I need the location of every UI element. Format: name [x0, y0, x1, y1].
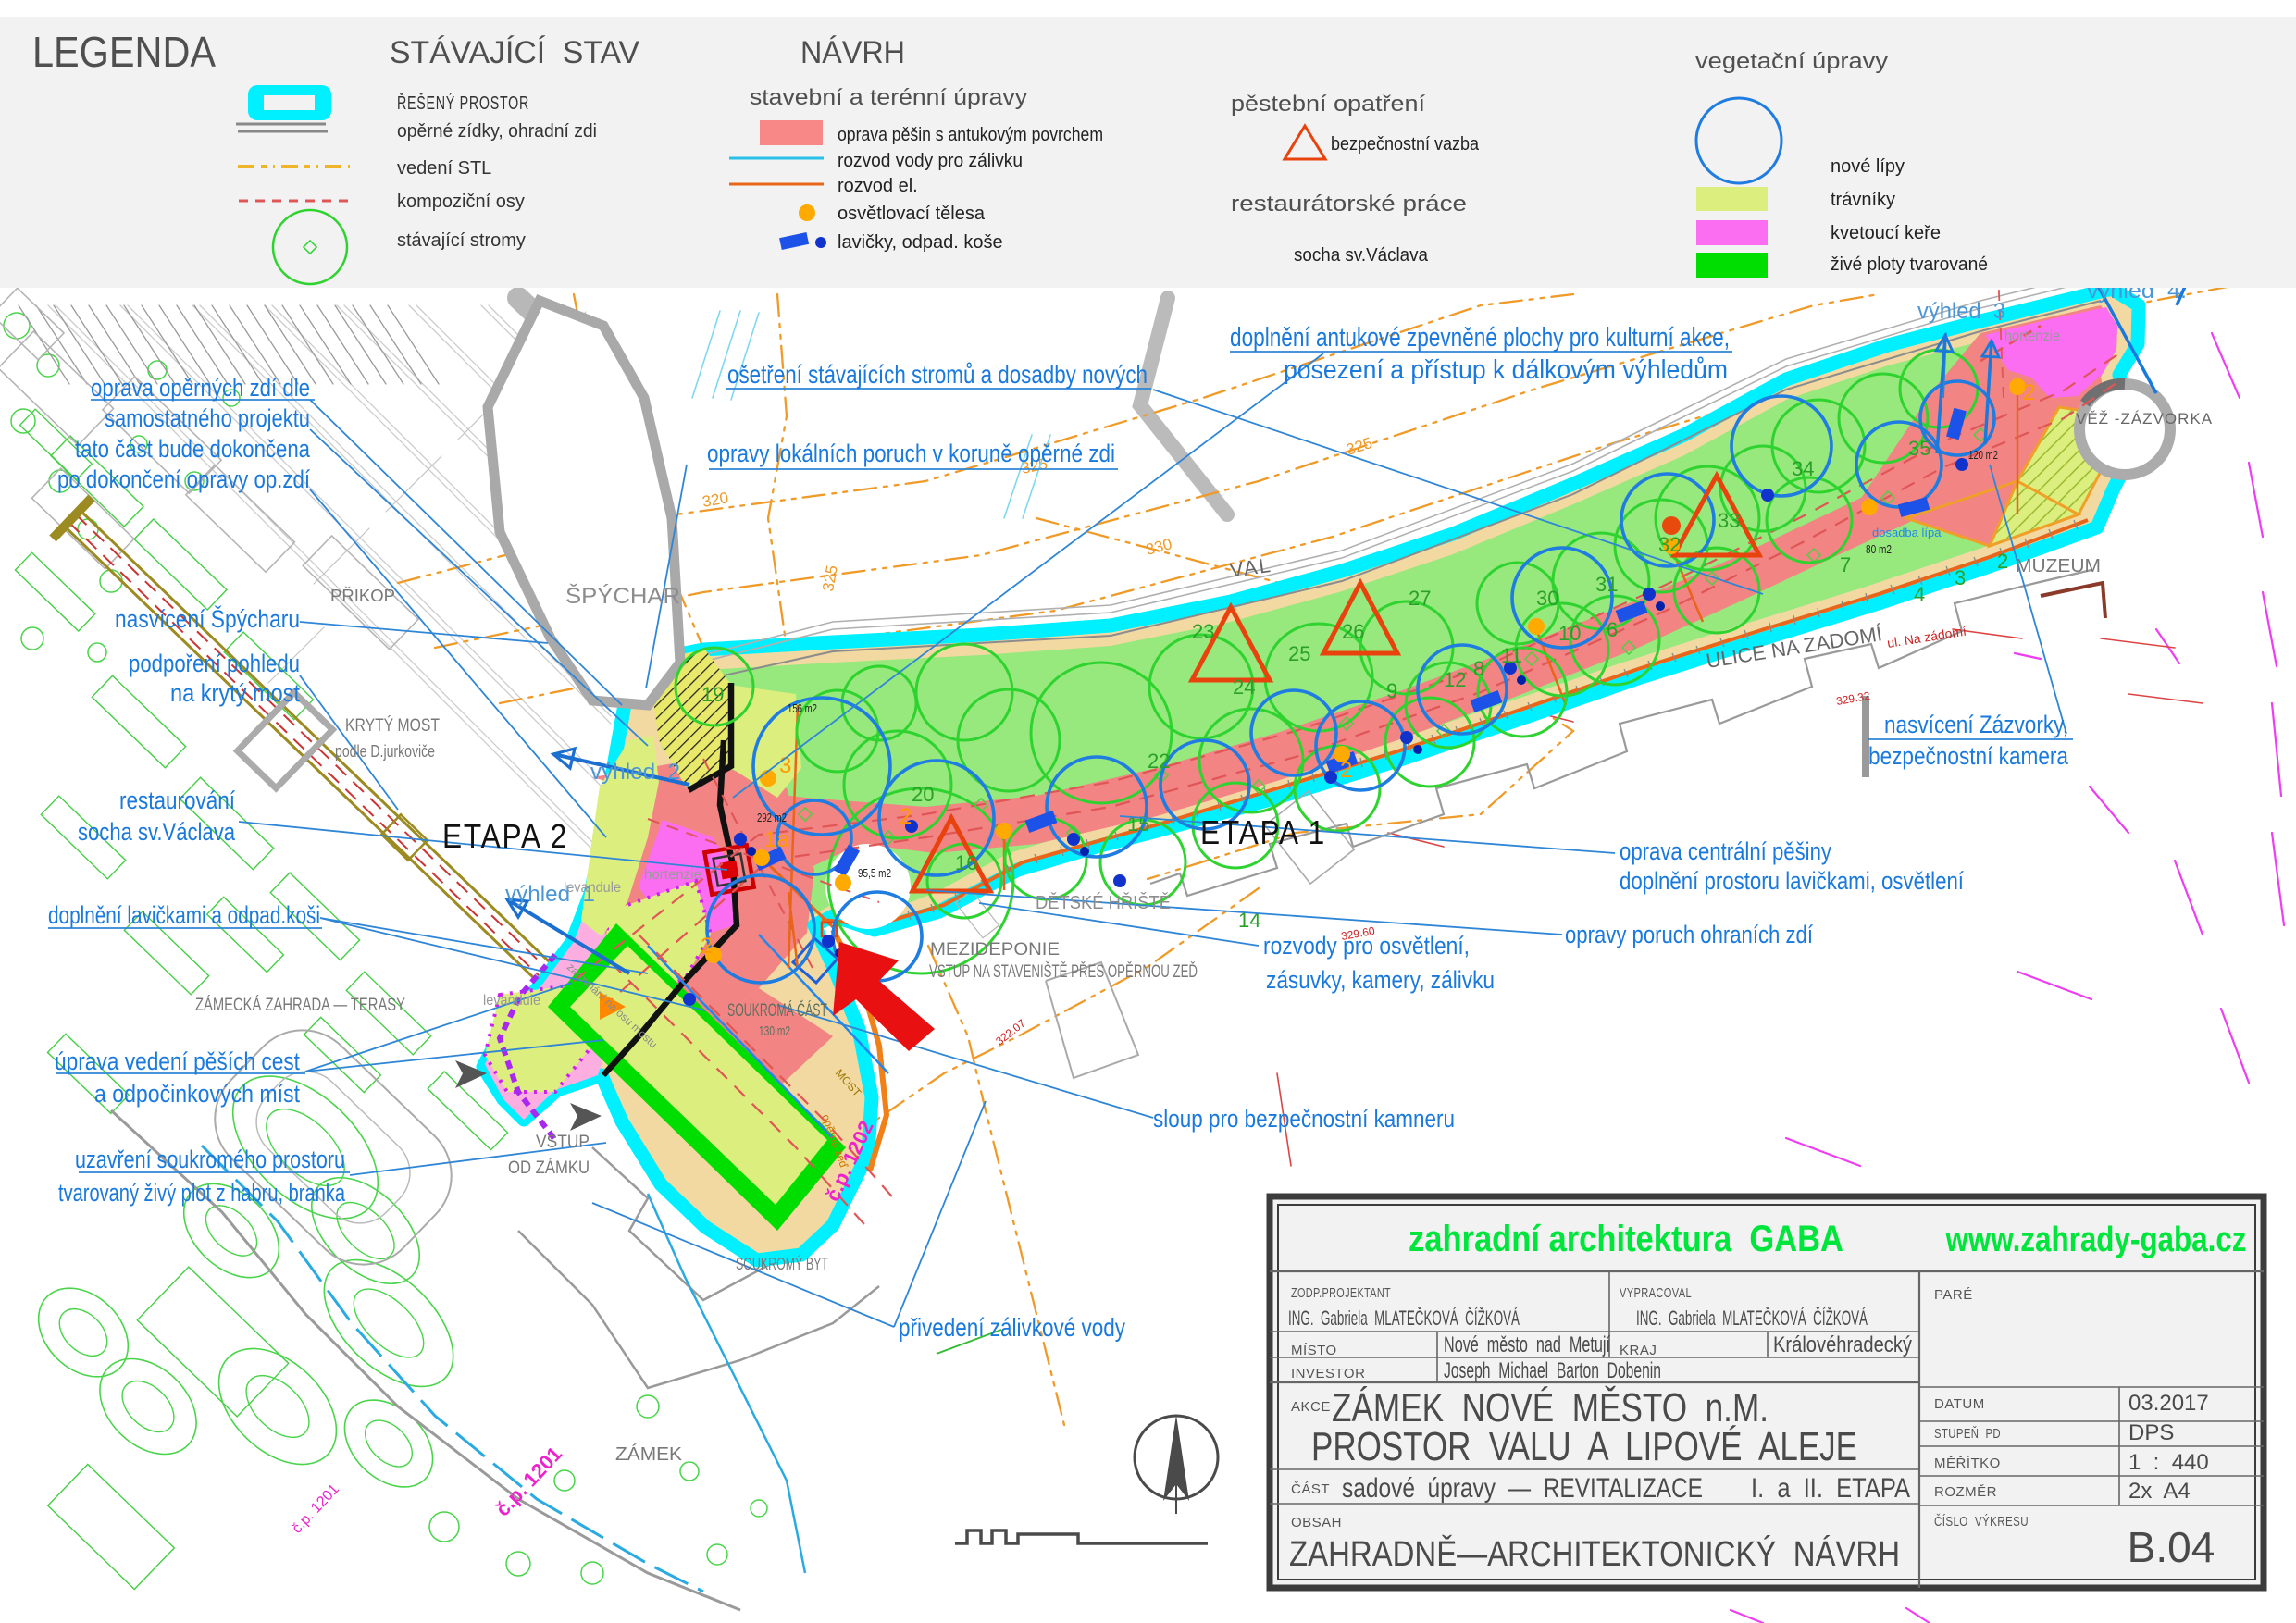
- svg-text:lavičky, odpad. koše: lavičky, odpad. koše: [838, 232, 1003, 253]
- svg-text:levandule: levandule: [564, 880, 621, 896]
- svg-text:ETAPA 2: ETAPA 2: [442, 817, 568, 855]
- svg-text:ING. Gabriela MLATEČKOVÁ ČÍ: ING. Gabriela MLATEČKOVÁ ČÍŽKOVÁ: [1636, 1307, 1868, 1330]
- svg-text:20: 20: [912, 783, 934, 806]
- svg-text:www.zahrady-gaba.cz: www.zahrady-gaba.cz: [1945, 1220, 2247, 1259]
- svg-text:VSTUP NA STAVENIŠTĚ PŘES OPĚRN: VSTUP NA STAVENIŠTĚ PŘES OPĚRNOU ZEĎ: [929, 961, 1198, 982]
- svg-text:ZÁMECKÁ ZAHRADA — TERASY: ZÁMECKÁ ZAHRADA — TERASY: [195, 996, 405, 1015]
- svg-text:ZODP.PROJEKTANT: ZODP.PROJEKTANT: [1291, 1285, 1391, 1301]
- svg-text:VSTUP: VSTUP: [536, 1133, 590, 1152]
- svg-text:2: 2: [2023, 380, 2035, 405]
- svg-text:23: 23: [1192, 620, 1214, 643]
- svg-text:LEGENDA: LEGENDA: [32, 28, 216, 76]
- svg-text:KRYTÝ MOST: KRYTÝ MOST: [345, 716, 440, 736]
- svg-text:levandule: levandule: [483, 993, 540, 1009]
- svg-text:12: 12: [1444, 668, 1466, 691]
- svg-text:120 m2: 120 m2: [1968, 448, 1998, 462]
- svg-text:vegetační úpravy: vegetační úpravy: [1695, 49, 1888, 74]
- svg-text:socha sv.Václava: socha sv.Václava: [78, 818, 236, 846]
- svg-text:doplnění antukové zpevněné plo: doplnění antukové zpevněné plochy pro ku…: [1230, 323, 1730, 353]
- svg-text:živé ploty tvarované: živé ploty tvarované: [1831, 254, 1988, 275]
- svg-text:a odpočinkových míst: a odpočinkových míst: [94, 1080, 300, 1108]
- svg-text:30: 30: [1536, 587, 1558, 610]
- svg-text:vedení STL: vedení STL: [397, 158, 491, 179]
- svg-text:130 m2: 130 m2: [759, 1023, 790, 1039]
- svg-text:na krytý most: na krytý most: [170, 679, 300, 707]
- svg-text:STÁVAJÍCÍ STAV: STÁVAJÍCÍ STAV: [390, 35, 639, 70]
- svg-text:I. a II. ETAPA: I. a II. ETAPA: [1751, 1473, 1910, 1504]
- svg-text:úprava vedení pěších cest: úprava vedení pěších cest: [55, 1047, 300, 1075]
- svg-text:3: 3: [1955, 566, 1966, 589]
- svg-text:ČÍSLO VÝKRESU: ČÍSLO VÝKRESU: [1934, 1514, 2029, 1530]
- svg-text:zahradní architektura GABA: zahradní architektura GABA: [1409, 1219, 1843, 1259]
- svg-text:tato část bude dokončena: tato část bude dokončena: [75, 435, 311, 463]
- svg-text:2: 2: [701, 934, 713, 959]
- svg-text:SOUKROMÝ BYT: SOUKROMÝ BYT: [736, 1255, 828, 1273]
- svg-text:restaurátorské práce: restaurátorské práce: [1231, 192, 1467, 217]
- svg-text:rozvod vody pro zálivku: rozvod vody pro zálivku: [838, 151, 1023, 171]
- svg-text:bezpečnostní kamera: bezpečnostní kamera: [1868, 742, 2069, 770]
- svg-text:DĚTSKÉ HŘIŠTĚ: DĚTSKÉ HŘIŠTĚ: [1036, 892, 1171, 913]
- svg-text:Královéhradecký: Královéhradecký: [1773, 1332, 1912, 1357]
- svg-text:22: 22: [1148, 750, 1170, 773]
- svg-text:95,5 m2: 95,5 m2: [858, 866, 891, 880]
- svg-text:24: 24: [1233, 675, 1255, 699]
- svg-text:socha sv.Václava: socha sv.Václava: [1294, 245, 1429, 266]
- svg-text:výhled 2: výhled 2: [590, 760, 680, 785]
- svg-text:19: 19: [701, 683, 724, 706]
- svg-text:MÍSTO: MÍSTO: [1291, 1343, 1337, 1358]
- svg-text:po dokončení opravy op.zdí: po dokončení opravy op.zdí: [57, 465, 310, 493]
- svg-text:opěrné zídky, ohradní zdi: opěrné zídky, ohradní zdi: [397, 121, 597, 142]
- svg-text:KRAJ: KRAJ: [1620, 1343, 1657, 1358]
- svg-text:ZÁMEK: ZÁMEK: [615, 1443, 683, 1465]
- svg-text:podle D.jurkoviče: podle D.jurkoviče: [335, 742, 435, 761]
- svg-text:7: 7: [1840, 553, 1851, 576]
- svg-text:35: 35: [1908, 437, 1930, 460]
- svg-text:2: 2: [1997, 550, 2008, 573]
- svg-text:AKCE: AKCE: [1291, 1399, 1331, 1415]
- svg-text:STUPEŇ PD: STUPEŇ PD: [1934, 1426, 2001, 1442]
- svg-text:výhled 3: výhled 3: [1917, 299, 2005, 324]
- svg-text:nasvícení Špýcharu: nasvícení Špýcharu: [115, 604, 300, 633]
- svg-text:rozvod el.: rozvod el.: [838, 176, 918, 196]
- svg-text:přivedení zálivkové vody: přivedení zálivkové vody: [899, 1313, 1125, 1342]
- svg-text:osvětlovací tělesa: osvětlovací tělesa: [838, 204, 986, 224]
- svg-text:oprava centrální pěšiny: oprava centrální pěšiny: [1620, 837, 1831, 865]
- svg-text:16: 16: [955, 851, 977, 874]
- svg-text:31: 31: [1595, 573, 1618, 596]
- svg-text:dosadba lípa: dosadba lípa: [1872, 526, 1942, 539]
- svg-text:stávající stromy: stávající stromy: [397, 230, 526, 251]
- svg-text:8: 8: [1473, 657, 1484, 680]
- svg-text:podpoření pohledu: podpoření pohledu: [129, 650, 300, 677]
- svg-text:MĚŘÍTKO: MĚŘÍTKO: [1934, 1456, 2001, 1471]
- svg-text:INVESTOR: INVESTOR: [1291, 1366, 1365, 1381]
- svg-text:MUZEUM: MUZEUM: [2016, 556, 2101, 576]
- svg-text:VĚŽ -ZÁZVORKA: VĚŽ -ZÁZVORKA: [2076, 410, 2213, 427]
- svg-text:opravy poruch ohraních zdí: opravy poruch ohraních zdí: [1565, 921, 1813, 948]
- svg-text:oprava pěšin s antukovým povrc: oprava pěšin s antukovým povrchem: [838, 125, 1103, 145]
- svg-text:156 m2: 156 m2: [788, 701, 817, 715]
- svg-text:11: 11: [1501, 644, 1522, 667]
- svg-text:OBSAH: OBSAH: [1291, 1515, 1342, 1530]
- svg-text:NÁVRH: NÁVRH: [800, 35, 905, 70]
- svg-text:Joseph Michael Barton Doben: Joseph Michael Barton Dobenin: [1444, 1358, 1661, 1383]
- svg-text:stavební a terénní úpravy: stavební a terénní úpravy: [750, 85, 1027, 110]
- svg-text:zásuvky, kamery, zálivku: zásuvky, kamery, zálivku: [1266, 966, 1495, 994]
- svg-text:B.04: B.04: [2128, 1523, 2215, 1571]
- svg-text:292 m2: 292 m2: [757, 811, 787, 824]
- svg-text:80 m2: 80 m2: [1866, 542, 1892, 556]
- svg-text:2x A4: 2x A4: [2128, 1479, 2191, 1504]
- svg-text:32: 32: [1658, 533, 1681, 556]
- svg-text:26: 26: [1342, 620, 1364, 643]
- svg-text:ZAHRADNĚ—ARCHITEKTONICKÝ NÁVR: ZAHRADNĚ—ARCHITEKTONICKÝ NÁVRH: [1289, 1534, 1900, 1574]
- svg-text:ROZMĚR: ROZMĚR: [1934, 1484, 1997, 1500]
- svg-text:9: 9: [1386, 679, 1397, 702]
- svg-text:PROSTOR VALU A LIPOVÉ ALEJ: PROSTOR VALU A LIPOVÉ ALEJE: [1311, 1424, 1857, 1469]
- svg-text:oprava opěrných zdí dle: oprava opěrných zdí dle: [91, 374, 310, 402]
- svg-text:nové lípy: nové lípy: [1831, 156, 1905, 177]
- svg-text:2: 2: [900, 804, 912, 829]
- svg-text:tvarovaný živý plot z habru, b: tvarovaný živý plot z habru, branka: [58, 1179, 346, 1207]
- svg-text:10: 10: [1558, 622, 1581, 645]
- svg-text:25: 25: [1288, 642, 1310, 665]
- svg-text:03.2017: 03.2017: [2128, 1391, 2209, 1416]
- svg-text:PARÉ: PARÉ: [1934, 1287, 1973, 1303]
- svg-text:ING. Gabriela MLATEČKOVÁ ČÍ: ING. Gabriela MLATEČKOVÁ ČÍŽKOVÁ: [1288, 1307, 1520, 1330]
- svg-text:DATUM: DATUM: [1934, 1396, 1985, 1412]
- svg-text:doplnění lavičkami a odpad.koš: doplnění lavičkami a odpad.koši: [48, 901, 320, 929]
- svg-text:restaurování: restaurování: [119, 787, 235, 814]
- svg-text:34: 34: [1792, 457, 1814, 480]
- svg-text:PŘIKOP: PŘIKOP: [330, 587, 395, 605]
- svg-text:trávníky: trávníky: [1831, 190, 1895, 210]
- svg-text:ŘEŠENÝ PROSTOR: ŘEŠENÝ PROSTOR: [397, 93, 529, 114]
- svg-text:pěstební opatření: pěstební opatření: [1231, 92, 1425, 117]
- svg-text:posezení a přístup k dálkovým: posezení a přístup k dálkovým výhledům: [1284, 355, 1728, 385]
- svg-text:ČÁST: ČÁST: [1291, 1481, 1330, 1497]
- svg-text:hortenzie: hortenzie: [644, 867, 701, 883]
- svg-text:kvetoucí keře: kvetoucí keře: [1831, 223, 1941, 243]
- svg-text:27: 27: [1409, 587, 1431, 610]
- svg-text:Nové město nad Metují: Nové město nad Metují: [1444, 1332, 1610, 1357]
- svg-text:samostatného projektu: samostatného projektu: [105, 404, 310, 432]
- svg-text:ETAPA 1: ETAPA 1: [1200, 813, 1326, 851]
- svg-text:15: 15: [1127, 812, 1149, 836]
- svg-text:kompoziční osy: kompoziční osy: [397, 192, 525, 212]
- svg-text:bezpečnostní vazba: bezpečnostní vazba: [1331, 134, 1480, 155]
- svg-text:6: 6: [1607, 618, 1618, 641]
- svg-text:doplnění prostoru lavičkami, o: doplnění prostoru lavičkami, osvětlení: [1620, 867, 1964, 895]
- svg-text:ŠPÝCHAR: ŠPÝCHAR: [565, 583, 680, 609]
- svg-text:33: 33: [1718, 509, 1740, 532]
- svg-text:1a: 1a: [764, 827, 789, 852]
- svg-text:DPS: DPS: [2128, 1420, 2174, 1445]
- svg-text:sadové úpravy — REVITALIZAC: sadové úpravy — REVITALIZACE: [1342, 1473, 1703, 1504]
- svg-text:nasvícení Zázvorky,: nasvícení Zázvorky,: [1884, 711, 2068, 738]
- svg-text:uzavření soukromého prostoru: uzavření soukromého prostoru: [75, 1146, 345, 1173]
- svg-text:1 : 440: 1 : 440: [2128, 1450, 2209, 1475]
- svg-text:3: 3: [779, 753, 791, 778]
- svg-text:VYPRACOVAL: VYPRACOVAL: [1620, 1285, 1692, 1301]
- svg-text:MEZIDEPONIE: MEZIDEPONIE: [930, 940, 1060, 960]
- svg-text:SOUKROMÁ ČÁST: SOUKROMÁ ČÁST: [727, 1000, 827, 1021]
- svg-text:opravy lokálních poruch v koru: opravy lokálních poruch v koruně opěrné …: [707, 440, 1115, 467]
- svg-text:sloup pro bezpečnostní kamneru: sloup pro bezpečnostní kamneru: [1153, 1105, 1455, 1133]
- svg-text:ošetření stávajících stromů a: ošetření stávajících stromů a dosadby no…: [727, 360, 1148, 389]
- svg-text:OD ZÁMKU: OD ZÁMKU: [508, 1158, 590, 1178]
- svg-text:2: 2: [1340, 758, 1352, 783]
- svg-text:hortenzie: hortenzie: [2004, 328, 2060, 344]
- svg-text:4: 4: [1914, 583, 1925, 606]
